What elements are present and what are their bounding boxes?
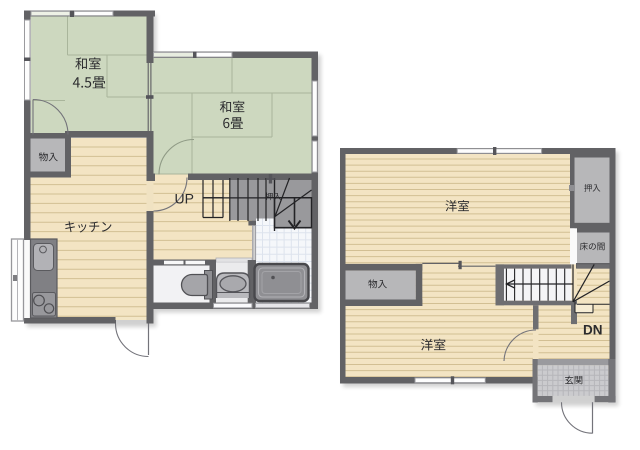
svg-text:UP: UP	[175, 191, 194, 207]
svg-text:DN: DN	[583, 323, 603, 338]
